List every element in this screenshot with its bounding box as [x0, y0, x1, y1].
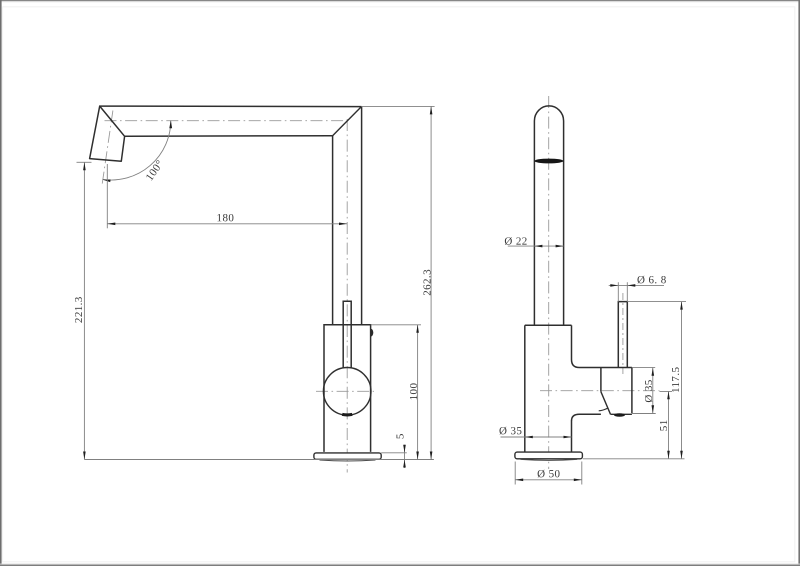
- svg-text:100°: 100°: [144, 158, 167, 183]
- svg-text:Ø 6. 8: Ø 6. 8: [637, 274, 667, 286]
- svg-text:Ø 35: Ø 35: [643, 379, 655, 402]
- svg-text:Ø 50: Ø 50: [537, 468, 560, 480]
- svg-text:221.3: 221.3: [73, 296, 85, 323]
- svg-text:117.5: 117.5: [670, 367, 682, 393]
- svg-text:100: 100: [408, 383, 420, 401]
- svg-text:51: 51: [658, 419, 670, 431]
- svg-text:5: 5: [394, 433, 406, 439]
- svg-text:Ø 22: Ø 22: [504, 236, 527, 248]
- svg-text:180: 180: [217, 212, 235, 224]
- svg-text:262.3: 262.3: [421, 269, 433, 296]
- svg-text:Ø 35: Ø 35: [499, 425, 522, 437]
